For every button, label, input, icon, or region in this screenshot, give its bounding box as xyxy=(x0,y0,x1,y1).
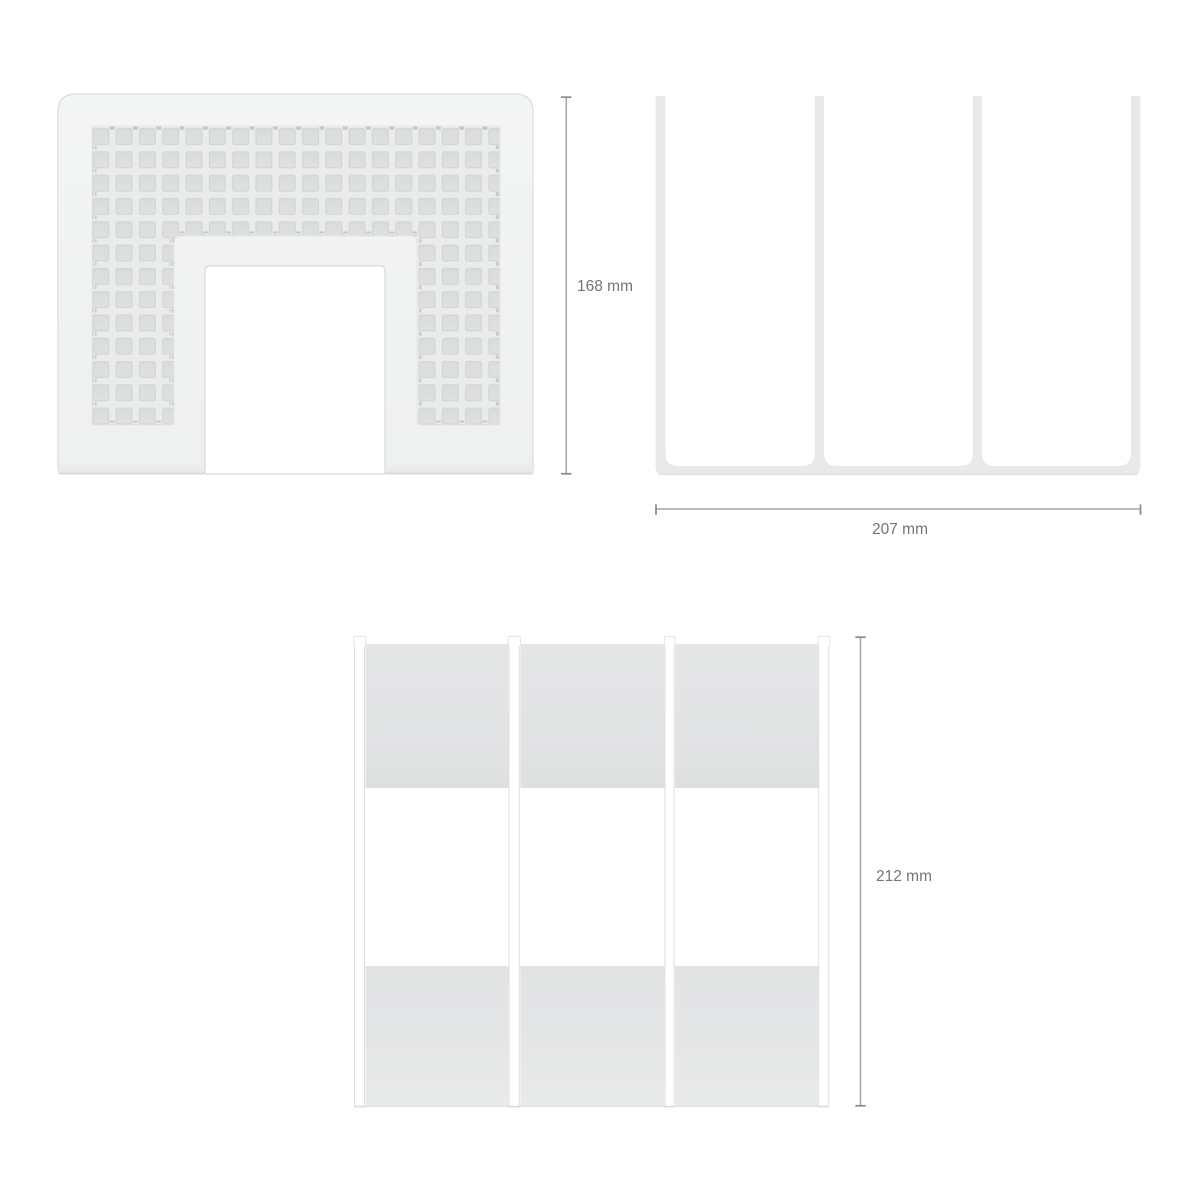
svg-text:212 mm: 212 mm xyxy=(876,868,932,885)
svg-text:168 mm: 168 mm xyxy=(577,278,633,295)
svg-text:207 mm: 207 mm xyxy=(872,521,928,538)
